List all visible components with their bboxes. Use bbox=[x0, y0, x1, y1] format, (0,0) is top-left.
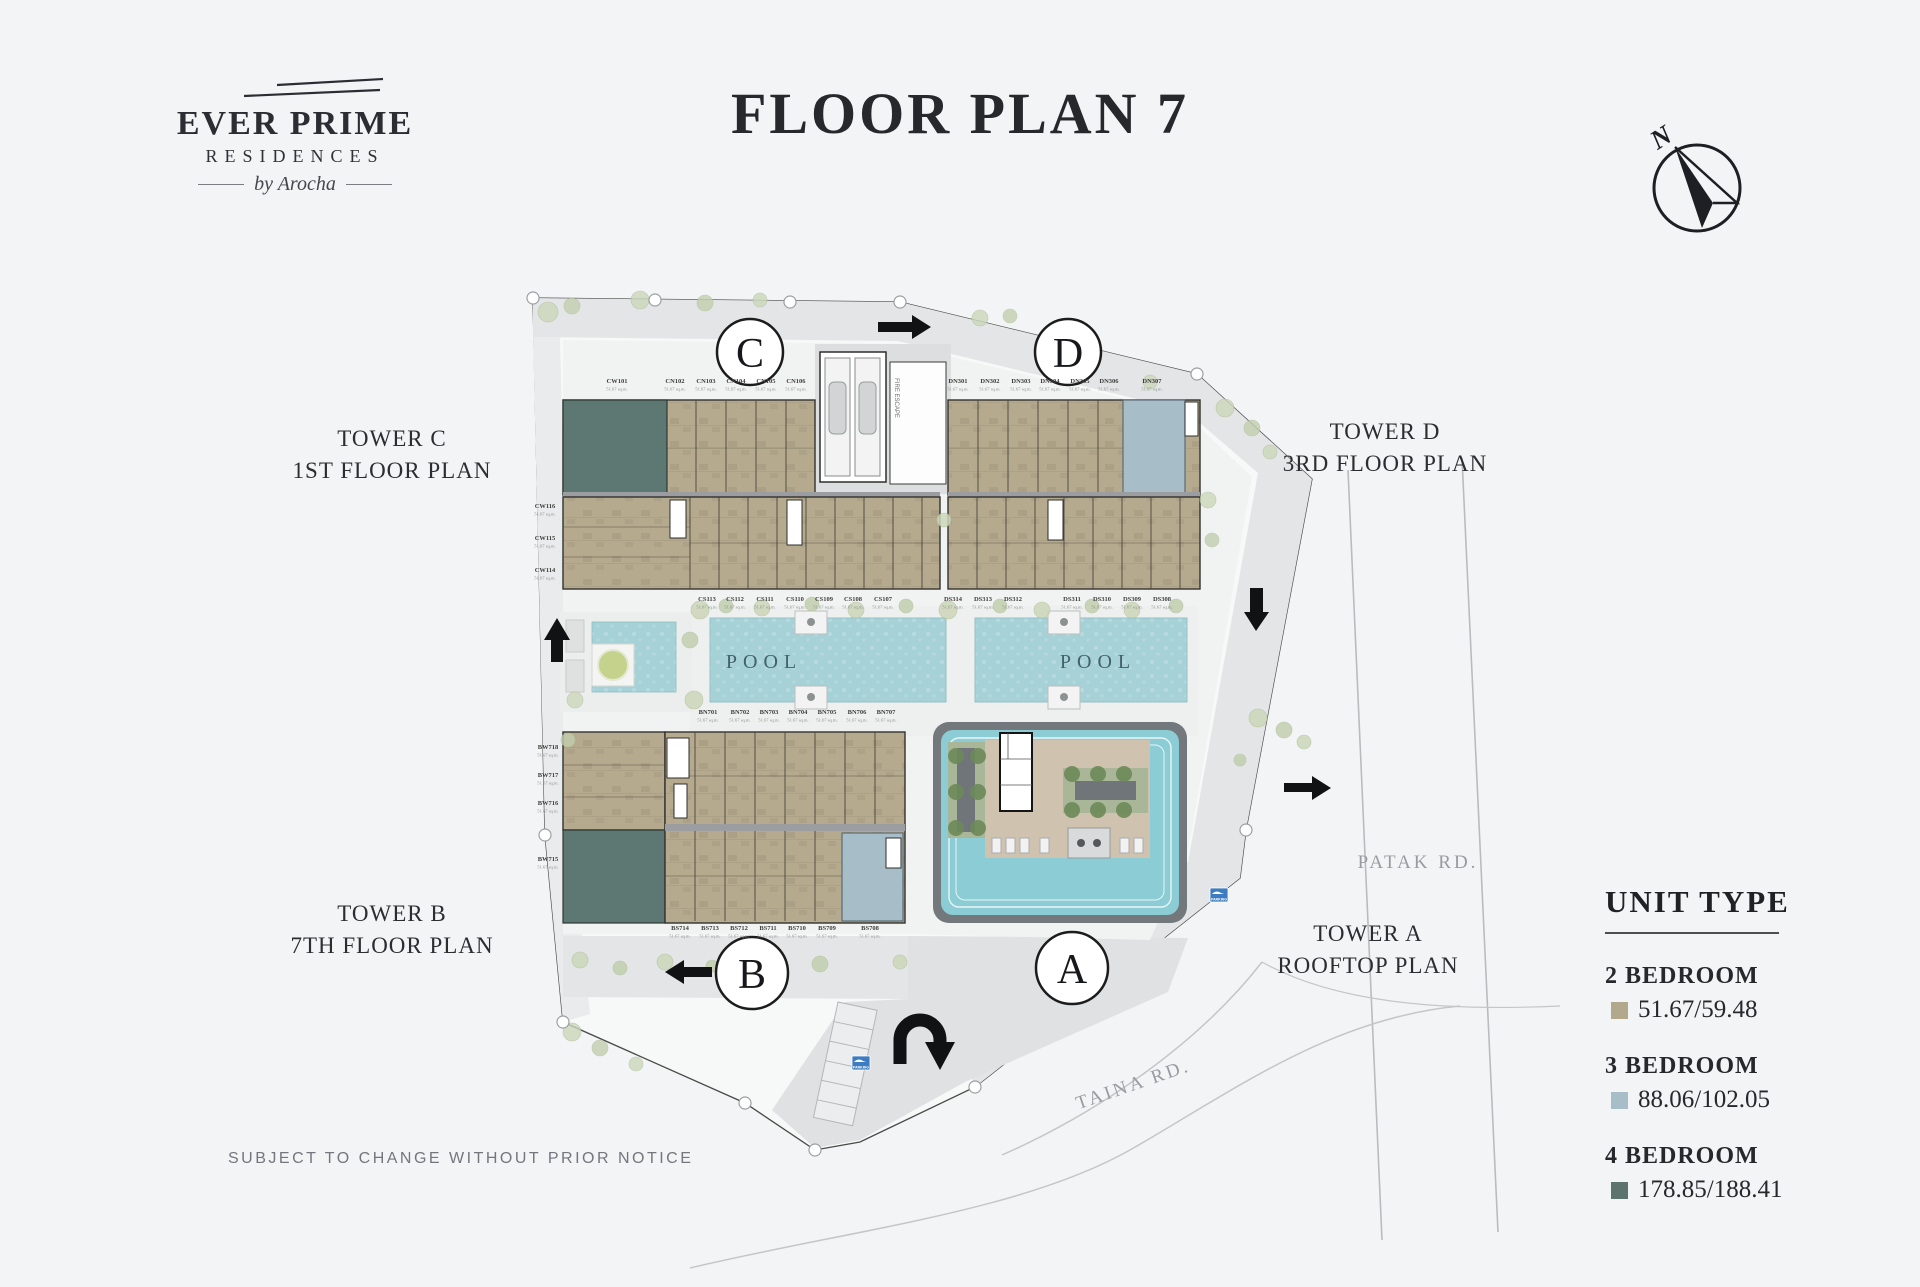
unit-area-label: 51.67 sq.m. bbox=[758, 718, 779, 723]
unit-area-label: 51.67 sq.m. bbox=[696, 605, 717, 610]
unit-number-label: CS110 bbox=[786, 596, 804, 603]
unit-area-label: 51.67 sq.m. bbox=[1010, 387, 1031, 392]
unit-area-label: 51.67 sq.m. bbox=[1069, 387, 1090, 392]
unit-number-label: CS108 bbox=[844, 596, 863, 603]
unit-number-label: CS107 bbox=[874, 596, 893, 603]
patak-road-label: PATAK RD. bbox=[1358, 852, 1479, 873]
unit-number-label: DS311 bbox=[1063, 596, 1081, 603]
svg-text:PARKING: PARKING bbox=[853, 1066, 869, 1070]
legend-item-2br: 2 BEDROOM 51.67/59.48 bbox=[1605, 963, 1920, 1024]
unit-number-label: CN105 bbox=[756, 378, 776, 385]
unit-area-label: 51.67 sq.m. bbox=[846, 718, 867, 723]
unit-number-label: DS308 bbox=[1153, 596, 1172, 603]
unit-area-label: 51.67 sq.m. bbox=[1141, 387, 1162, 392]
unit-area-label: 51.67 sq.m. bbox=[979, 387, 1000, 392]
unit-number-label: DS309 bbox=[1123, 596, 1142, 603]
unit-number-label: CN106 bbox=[786, 378, 806, 385]
svg-text:PARKING: PARKING bbox=[1211, 898, 1227, 902]
unit-number-label: CW115 bbox=[535, 535, 556, 542]
unit-number-label: DN302 bbox=[980, 378, 999, 385]
unit-area-label: 51.67 sq.m. bbox=[695, 387, 716, 392]
roof-planter-right bbox=[1063, 766, 1148, 818]
unit-number-label: DN307 bbox=[1142, 378, 1162, 385]
unit-area-label: 51.67 sq.m. bbox=[1002, 605, 1023, 610]
north-compass-icon: N bbox=[1640, 105, 1775, 245]
unit-number-label: CS111 bbox=[756, 596, 773, 603]
unit-number-label: CW101 bbox=[607, 378, 628, 385]
unit-number-label: BS709 bbox=[818, 925, 836, 932]
disclaimer-note: SUBJECT TO CHANGE WITHOUT PRIOR NOTICE bbox=[228, 1150, 693, 1168]
unit-area-label: 51.67 sq.m. bbox=[972, 605, 993, 610]
unit-area-label: 51.67 sq.m. bbox=[699, 934, 720, 939]
pool-c: POOL bbox=[710, 611, 946, 709]
stair-core-b bbox=[667, 738, 689, 778]
unit-number-label: CW114 bbox=[535, 567, 556, 574]
unit-number-label: BS712 bbox=[730, 925, 748, 932]
unit-area-label: 51.67 sq.m. bbox=[537, 753, 558, 758]
unit-4br-b bbox=[563, 830, 665, 923]
arrow-right-side-icon bbox=[1284, 776, 1331, 800]
garage bbox=[820, 352, 886, 482]
svg-text:N: N bbox=[1644, 119, 1679, 156]
lift-core-b bbox=[674, 784, 687, 818]
unit-number-label: DN304 bbox=[1040, 378, 1060, 385]
parking-sign-icon-2: PARKING bbox=[1210, 888, 1228, 902]
unit-number-label: BN705 bbox=[818, 709, 838, 716]
unit-area-label: 51.67 sq.m. bbox=[787, 718, 808, 723]
unit-number-label: BN706 bbox=[848, 709, 868, 716]
legend-title: UNIT TYPE bbox=[1605, 884, 1920, 920]
roof-bbq bbox=[1068, 828, 1110, 858]
unit-area-label: 51.67 sq.m. bbox=[785, 387, 806, 392]
stair-core-d-right bbox=[1185, 402, 1198, 436]
pool-label-right: POOL bbox=[1060, 651, 1136, 673]
tower-a-building bbox=[933, 722, 1187, 923]
unit-number-label: DS314 bbox=[944, 596, 963, 603]
unit-area-label: 51.67 sq.m. bbox=[859, 934, 880, 939]
fire-escape-lobby: FIRE ESCAPE bbox=[890, 362, 946, 484]
tower-b-building bbox=[563, 732, 905, 923]
unit-number-label: DS310 bbox=[1093, 596, 1111, 603]
unit-area-label: 51.67 sq.m. bbox=[669, 934, 690, 939]
unit-number-label: CW116 bbox=[535, 503, 556, 510]
unit-number-label: CS112 bbox=[726, 596, 744, 603]
parking-sign-icon: PARKING bbox=[852, 1056, 870, 1070]
unit-number-label: DN303 bbox=[1011, 378, 1031, 385]
unit-number-label: BS708 bbox=[861, 925, 879, 932]
unit-number-label: BN704 bbox=[789, 709, 809, 716]
roof-planter-left bbox=[948, 742, 986, 838]
unit-number-label: BW718 bbox=[538, 744, 559, 751]
unit-number-label: CN104 bbox=[726, 378, 746, 385]
logo-subtitle: RESIDENCES bbox=[150, 146, 440, 167]
unit-number-label: BW717 bbox=[538, 772, 559, 779]
unit-area-label: 51.67 sq.m. bbox=[755, 387, 776, 392]
page-title: FLOOR PLAN 7 bbox=[0, 80, 1920, 147]
legend-swatch-2br-icon bbox=[1611, 1002, 1628, 1019]
logo-byline: by Arocha bbox=[150, 173, 440, 196]
stair-core-c bbox=[787, 500, 802, 545]
unit-area-label: 51.67 sq.m. bbox=[757, 934, 778, 939]
unit-area-label: 51.67 sq.m. bbox=[537, 781, 558, 786]
tower-c-label: TOWER C 1ST FLOOR PLAN bbox=[252, 423, 532, 487]
unit-area-label: 51.67 sq.m. bbox=[534, 576, 555, 581]
unit-number-label: CS109 bbox=[815, 596, 834, 603]
unit-area-label: 51.67 sq.m. bbox=[1039, 387, 1060, 392]
fire-escape-label: FIRE ESCAPE bbox=[893, 378, 899, 418]
unit-number-label: CN102 bbox=[665, 378, 684, 385]
unit-area-label: 51.67 sq.m. bbox=[813, 605, 834, 610]
unit-3br-d bbox=[1123, 400, 1185, 495]
stair-core-a bbox=[1000, 733, 1032, 811]
unit-area-label: 51.67 sq.m. bbox=[784, 605, 805, 610]
taina-road-label: TAINA RD. bbox=[1073, 1055, 1193, 1114]
unit-area-label: 51.67 sq.m. bbox=[664, 387, 685, 392]
unit-area-label: 51.67 sq.m. bbox=[534, 512, 555, 517]
unit-number-label: BN701 bbox=[699, 709, 718, 716]
legend-item-4br: 4 BEDROOM 178.85/188.41 bbox=[1605, 1143, 1920, 1204]
unit-number-label: BN707 bbox=[877, 709, 897, 716]
lift-core-d bbox=[1048, 500, 1063, 540]
stair-core-b-right bbox=[886, 838, 901, 868]
unit-type-legend: UNIT TYPE 2 BEDROOM 51.67/59.48 3 BEDROO… bbox=[1605, 884, 1920, 1204]
unit-number-label: DN306 bbox=[1099, 378, 1119, 385]
unit-area-label: 51.67 sq.m. bbox=[875, 718, 896, 723]
unit-area-label: 51.67 sq.m. bbox=[537, 809, 558, 814]
unit-number-label: DS313 bbox=[974, 596, 993, 603]
tower-d-label: TOWER D 3RD FLOOR PLAN bbox=[1245, 416, 1525, 480]
unit-number-label: DS312 bbox=[1004, 596, 1022, 603]
unit-area-label: 51.67 sq.m. bbox=[947, 387, 968, 392]
tower-b-label: TOWER B 7TH FLOOR PLAN bbox=[252, 898, 532, 962]
unit-number-label: DN305 bbox=[1070, 378, 1090, 385]
unit-number-label: CN103 bbox=[696, 378, 716, 385]
unit-area-label: 51.67 sq.m. bbox=[872, 605, 893, 610]
lift-core-c bbox=[670, 500, 686, 538]
unit-area-label: 51.67 sq.m. bbox=[537, 865, 558, 870]
unit-number-label: BN703 bbox=[760, 709, 780, 716]
marker-d: D bbox=[1053, 331, 1083, 377]
floor-plan-page: PATAK RD. TAINA RD. PARKING bbox=[0, 0, 1920, 1287]
unit-number-label: BW715 bbox=[538, 856, 559, 863]
unit-area-label: 51.67 sq.m. bbox=[1098, 387, 1119, 392]
marker-c: C bbox=[736, 331, 764, 377]
pool-label-left: POOL bbox=[726, 651, 802, 673]
marker-a: A bbox=[1057, 947, 1088, 993]
unit-area-label: 51.67 sq.m. bbox=[725, 387, 746, 392]
legend-rule bbox=[1605, 932, 1779, 934]
unit-number-label: BS714 bbox=[671, 925, 689, 932]
tower-d-building bbox=[948, 400, 1200, 589]
unit-area-label: 51.67 sq.m. bbox=[786, 934, 807, 939]
unit-area-label: 51.67 sq.m. bbox=[1061, 605, 1082, 610]
unit-area-label: 51.67 sq.m. bbox=[697, 718, 718, 723]
unit-area-label: 51.67 sq.m. bbox=[1121, 605, 1142, 610]
unit-area-label: 51.67 sq.m. bbox=[842, 605, 863, 610]
unit-row-c-left: CW11651.67 sq.m.CW11551.67 sq.m.CW11451.… bbox=[534, 503, 556, 581]
unit-area-label: 51.67 sq.m. bbox=[724, 605, 745, 610]
unit-area-label: 51.67 sq.m. bbox=[942, 605, 963, 610]
pool-d: POOL bbox=[975, 611, 1187, 709]
marker-b: B bbox=[738, 952, 766, 998]
unit-area-label: 51.67 sq.m. bbox=[606, 387, 627, 392]
unit-number-label: BW716 bbox=[538, 800, 559, 807]
unit-area-label: 51.67 sq.m. bbox=[754, 605, 775, 610]
unit-area-label: 51.67 sq.m. bbox=[728, 934, 749, 939]
legend-swatch-4br-icon bbox=[1611, 1182, 1628, 1199]
legend-item-3br: 3 BEDROOM 88.06/102.05 bbox=[1605, 1053, 1920, 1114]
unit-number-label: DN301 bbox=[948, 378, 967, 385]
unit-number-label: BN702 bbox=[731, 709, 750, 716]
unit-area-label: 51.67 sq.m. bbox=[729, 718, 750, 723]
unit-number-label: BS710 bbox=[788, 925, 806, 932]
unit-number-label: CS113 bbox=[698, 596, 716, 603]
road-patak: PATAK RD. bbox=[1348, 458, 1498, 1240]
tower-a-label: TOWER A ROOFTOP PLAN bbox=[1228, 918, 1508, 982]
legend-swatch-3br-icon bbox=[1611, 1092, 1628, 1109]
unit-area-label: 51.67 sq.m. bbox=[816, 718, 837, 723]
unit-number-label: BS711 bbox=[759, 925, 776, 932]
unit-area-label: 51.67 sq.m. bbox=[816, 934, 837, 939]
unit-area-label: 51.67 sq.m. bbox=[534, 544, 555, 549]
unit-4br-c bbox=[563, 400, 667, 495]
unit-area-label: 51.67 sq.m. bbox=[1151, 605, 1172, 610]
unit-number-label: BS713 bbox=[701, 925, 719, 932]
unit-area-label: 51.67 sq.m. bbox=[1091, 605, 1112, 610]
